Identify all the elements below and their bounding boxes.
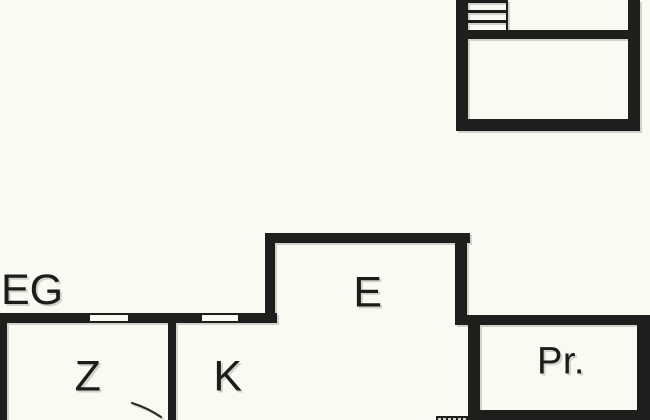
ground-staircase — [436, 416, 473, 420]
eg-wall-pr-right — [637, 315, 650, 420]
room-label-z: Z — [75, 353, 102, 402]
eg-wall-pr-left — [468, 315, 480, 420]
eg-wall-e-right — [455, 233, 467, 325]
floor-label: EG — [1, 269, 63, 312]
window-2 — [202, 315, 238, 321]
eg-wall-top-right — [455, 315, 650, 325]
ground-floor-plan: EG Z K E Pr. — [0, 0, 650, 420]
eg-wall-e-left — [265, 233, 275, 323]
window-1 — [90, 315, 128, 321]
eg-wall-zk-divider — [168, 313, 176, 420]
eg-wall-left-outer — [0, 313, 7, 420]
room-label-k: K — [213, 353, 242, 402]
floorplan-canvas: EG Z K E Pr. — [0, 0, 650, 420]
room-label-pr: Pr. — [537, 341, 585, 384]
eg-wall-e-top — [265, 233, 470, 243]
room-label-e: E — [353, 269, 382, 318]
eg-wall-pr-bottom — [468, 410, 650, 420]
